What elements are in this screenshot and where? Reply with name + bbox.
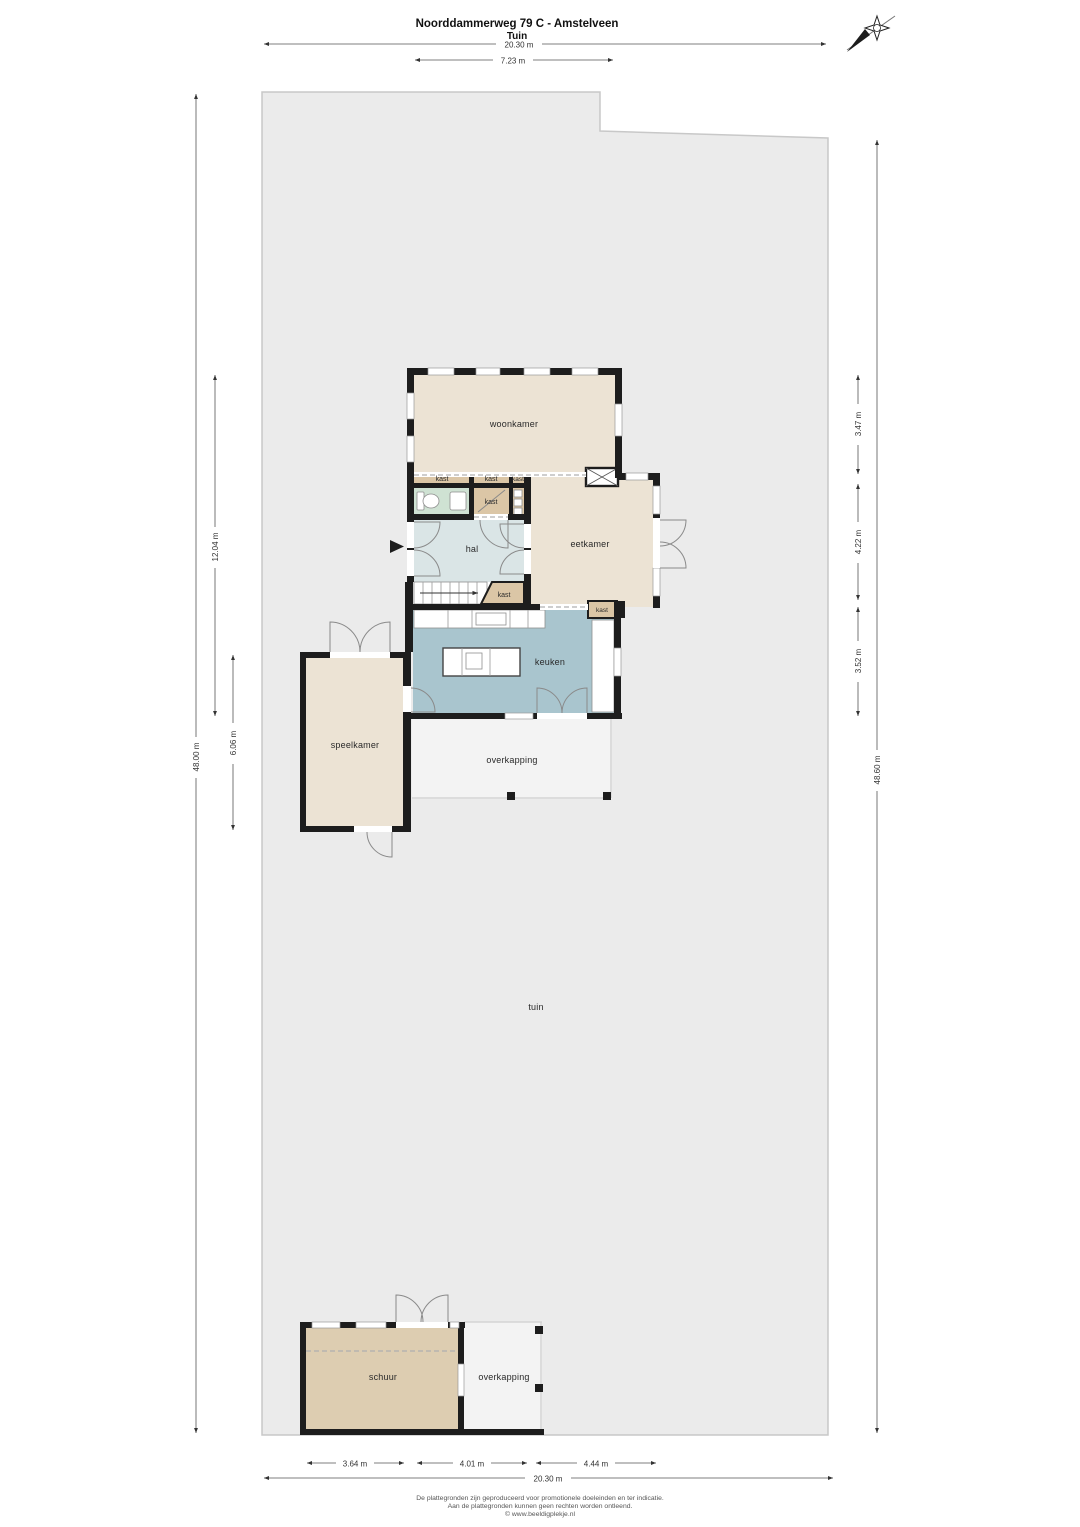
footer: De plattegronden zijn geproduceerd voor … bbox=[416, 1495, 664, 1518]
page-subtitle: Tuin bbox=[507, 31, 527, 42]
cooktop bbox=[476, 613, 506, 625]
page-title: Noorddammerweg 79 C - Amstelveen bbox=[416, 18, 619, 30]
shelf bbox=[514, 499, 522, 506]
dim-left-speelkamer: 6.06 m bbox=[229, 730, 238, 755]
shelf bbox=[514, 508, 522, 515]
footer-line-3: © www.beeldigplekje.nl bbox=[505, 1510, 575, 1518]
floorplan-page: tuin overkapping bbox=[0, 0, 1080, 1527]
overkapping-post bbox=[535, 1384, 543, 1392]
compass-icon bbox=[847, 16, 895, 52]
dim-bottom-overkapping: 4.01 m bbox=[460, 1460, 485, 1469]
overkapping-label: overkapping bbox=[478, 1372, 529, 1382]
dim-left-house: 12.04 m bbox=[211, 532, 220, 561]
overkapping-post bbox=[507, 792, 515, 800]
keuken-label: keuken bbox=[535, 657, 565, 667]
dim-right-woonkamer: 3.47 m bbox=[854, 411, 863, 436]
overkapping-label: overkapping bbox=[486, 755, 537, 765]
pantry-cabinet bbox=[592, 620, 614, 712]
kast-label: kast bbox=[596, 607, 608, 614]
dim-bottom-schuur: 3.64 m bbox=[343, 1460, 368, 1469]
hal-label: hal bbox=[466, 544, 479, 554]
island-sink bbox=[466, 653, 482, 669]
overkapping-post bbox=[603, 792, 611, 800]
overkapping-house: overkapping bbox=[412, 719, 612, 800]
dim-top-house: 7.23 m bbox=[501, 57, 526, 66]
eetkamer-label: eetkamer bbox=[570, 539, 609, 549]
dim-bottom-right: 4.44 m bbox=[584, 1460, 609, 1469]
kast-label: kast bbox=[498, 592, 511, 599]
footer-line-1: De plattegronden zijn geproduceerd voor … bbox=[416, 1495, 664, 1502]
kast-label: kast bbox=[485, 476, 498, 483]
shelf bbox=[514, 490, 522, 497]
speelkamer-label: speelkamer bbox=[331, 740, 380, 750]
header: Noorddammerweg 79 C - Amstelveen Tuin bbox=[416, 18, 619, 42]
washbasin bbox=[450, 492, 466, 510]
schuur-label: schuur bbox=[369, 1372, 397, 1382]
overkapping-post bbox=[535, 1326, 543, 1334]
dim-right-eetkamer: 4.22 m bbox=[854, 529, 863, 554]
dim-right-plot: 48.60 m bbox=[873, 755, 882, 784]
floorplan-canvas: tuin overkapping bbox=[0, 0, 1080, 1527]
footer-line-2: Aan de plattegronden kunnen geen rechten… bbox=[448, 1503, 633, 1510]
dim-right-keuken: 3.52 m bbox=[854, 648, 863, 673]
kast-label: kast bbox=[436, 476, 449, 483]
kast-label: kast bbox=[512, 476, 524, 483]
dim-bottom-total: 20.30 m bbox=[534, 1475, 563, 1484]
chimney bbox=[586, 468, 618, 486]
toilet-bowl bbox=[423, 494, 439, 508]
woonkamer-label: woonkamer bbox=[489, 419, 538, 429]
kast-label: kast bbox=[485, 499, 498, 506]
tuin-label: tuin bbox=[528, 1002, 543, 1012]
dim-left-plot: 48.00 m bbox=[192, 742, 201, 771]
